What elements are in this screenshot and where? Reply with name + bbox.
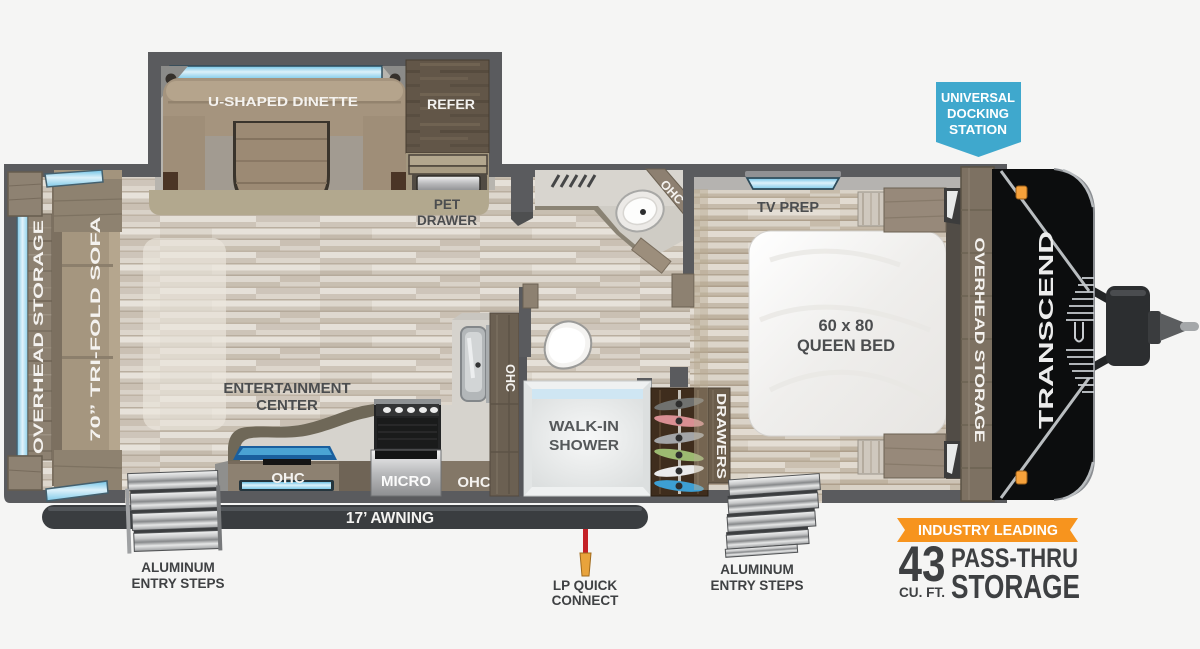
svg-text:REFER: REFER <box>427 97 475 112</box>
svg-text:UNIVERSAL: UNIVERSAL <box>941 90 1015 105</box>
svg-text:WALK-IN: WALK-IN <box>549 418 619 435</box>
svg-text:OVERHEAD STORAGE: OVERHEAD STORAGE <box>972 238 987 443</box>
svg-text:SHOWER: SHOWER <box>549 437 619 454</box>
svg-text:OHC: OHC <box>271 470 305 487</box>
svg-text:TV PREP: TV PREP <box>757 200 819 216</box>
svg-text:60 x 80: 60 x 80 <box>818 317 873 335</box>
svg-text:70” TRI-FOLD SOFA: 70” TRI-FOLD SOFA <box>87 217 103 442</box>
svg-text:ENTERTAINMENT: ENTERTAINMENT <box>223 380 350 397</box>
svg-text:TRANSCEND: TRANSCEND <box>1036 231 1058 429</box>
svg-text:LP QUICK: LP QUICK <box>553 578 618 593</box>
svg-text:STATION: STATION <box>949 122 1007 137</box>
svg-text:CONNECT: CONNECT <box>552 593 620 608</box>
svg-text:17’ AWNING: 17’ AWNING <box>346 510 434 527</box>
svg-text:ALUMINUM: ALUMINUM <box>720 562 794 577</box>
svg-text:DRAWER: DRAWER <box>417 213 477 228</box>
svg-text:OVERHEAD STORAGE: OVERHEAD STORAGE <box>31 220 46 454</box>
svg-text:ENTRY STEPS: ENTRY STEPS <box>710 578 803 593</box>
svg-text:DOCKING: DOCKING <box>947 106 1009 121</box>
svg-text:U-SHAPED DINETTE: U-SHAPED DINETTE <box>208 94 358 109</box>
svg-text:DRAWERS: DRAWERS <box>714 393 729 479</box>
svg-text:STORAGE: STORAGE <box>951 568 1080 605</box>
svg-text:CU. FT.: CU. FT. <box>899 584 945 600</box>
svg-text:QUEEN BED: QUEEN BED <box>797 337 895 355</box>
svg-text:ENTRY STEPS: ENTRY STEPS <box>131 576 224 591</box>
svg-text:PET: PET <box>434 197 461 212</box>
svg-text:ALUMINUM: ALUMINUM <box>141 560 215 575</box>
svg-text:MICRO: MICRO <box>381 473 431 490</box>
svg-text:CENTER: CENTER <box>256 397 318 414</box>
svg-text:OHC: OHC <box>503 364 517 392</box>
svg-text:OHC: OHC <box>457 474 491 491</box>
